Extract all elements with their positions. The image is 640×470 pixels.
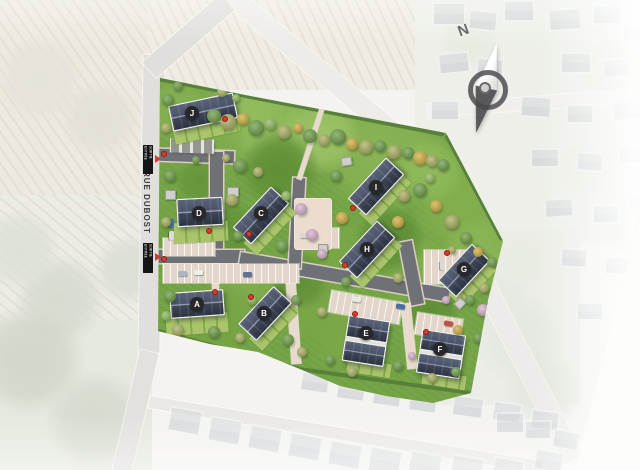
tree — [341, 277, 351, 287]
bg-house — [547, 7, 583, 32]
tree — [237, 113, 249, 125]
parked-car — [169, 231, 174, 240]
bg-house — [559, 247, 588, 269]
bg-house — [622, 24, 640, 42]
tree — [473, 247, 483, 257]
street-name-label: RUE DUBOST — [142, 171, 151, 234]
tree — [453, 325, 463, 335]
parked-car — [178, 271, 187, 276]
entrance-pin — [161, 151, 167, 157]
tree — [359, 140, 373, 154]
building-b-badge[interactable]: B — [257, 306, 271, 320]
tree — [264, 118, 276, 130]
bg-house — [618, 146, 640, 164]
parked-car — [194, 270, 203, 275]
tree — [479, 283, 489, 293]
tree — [451, 367, 461, 377]
tree — [276, 240, 288, 252]
entrance-pin — [206, 228, 212, 234]
bg-house — [532, 448, 565, 470]
parked-car — [243, 272, 252, 277]
tree — [325, 355, 335, 365]
garden-shed — [165, 190, 176, 200]
tree — [232, 94, 240, 102]
tree — [208, 326, 220, 338]
tree — [173, 81, 183, 91]
bg-house — [615, 309, 640, 329]
tree — [291, 295, 301, 305]
bg-house — [592, 204, 620, 224]
tree — [297, 347, 307, 357]
bg-house — [604, 256, 630, 275]
entrance-pin — [248, 294, 254, 300]
tree — [162, 94, 174, 106]
bg-house — [166, 405, 204, 437]
bg-house — [543, 197, 574, 219]
compass-center-dot — [479, 82, 491, 94]
tree — [248, 120, 264, 136]
tree — [408, 352, 416, 360]
building-c-badge[interactable]: C — [254, 206, 268, 220]
vegetation-blob — [495, 237, 545, 287]
tree — [233, 159, 247, 173]
tree — [442, 296, 450, 304]
bg-house — [206, 415, 244, 447]
tree — [277, 125, 291, 139]
bg-house — [524, 420, 552, 440]
tree — [465, 295, 475, 305]
tree — [317, 249, 327, 259]
tree — [295, 203, 307, 215]
entrance-pin — [444, 250, 450, 256]
tree — [347, 367, 357, 377]
tree — [281, 191, 291, 201]
entrance-pin — [350, 205, 356, 211]
entrance-pin — [423, 329, 429, 335]
building-e-roof — [342, 315, 391, 367]
bg-house — [611, 99, 640, 122]
bg-house — [566, 104, 594, 124]
tree — [161, 311, 171, 321]
tree — [374, 140, 386, 152]
tree — [306, 229, 318, 241]
tree — [413, 151, 427, 165]
tree — [164, 170, 176, 182]
building-h-badge[interactable]: H — [360, 242, 374, 256]
tree — [207, 109, 221, 123]
tree — [164, 290, 176, 302]
tree — [172, 324, 184, 336]
building-j-badge[interactable]: J — [185, 106, 199, 120]
tree — [161, 217, 171, 227]
building-e-badge[interactable]: E — [359, 326, 373, 340]
tree — [430, 200, 442, 212]
building-d-badge[interactable]: D — [192, 206, 206, 220]
garden-shed — [340, 156, 352, 167]
tree — [393, 361, 403, 371]
tree — [330, 170, 342, 182]
compass-north-arrow: N — [448, 18, 528, 144]
bg-house — [326, 439, 364, 470]
tree — [330, 129, 346, 145]
bg-house — [530, 148, 560, 168]
tree — [303, 129, 317, 143]
tree — [427, 373, 437, 383]
building-i-badge[interactable]: I — [369, 180, 383, 194]
entrance-pin — [352, 311, 358, 317]
tree — [235, 333, 245, 343]
tree — [222, 154, 230, 162]
tree — [282, 334, 294, 346]
bg-house — [601, 57, 631, 79]
tree — [460, 232, 472, 244]
building-f-badge[interactable]: F — [433, 342, 447, 356]
bg-house — [575, 151, 605, 173]
tree — [346, 138, 358, 150]
bg-house — [576, 302, 604, 321]
bg-house — [286, 431, 324, 463]
tree — [233, 231, 243, 241]
entrance-pin — [246, 231, 252, 237]
tree — [318, 134, 330, 146]
bg-house — [560, 52, 592, 74]
tree — [445, 215, 459, 229]
site-plan-canvas: ABCDEFGHIJ RUE DUBOST ENTRÉESORTIEENTRÉE… — [0, 0, 640, 470]
building-a-badge[interactable]: A — [190, 297, 204, 311]
bg-house — [550, 428, 581, 453]
tree — [317, 307, 327, 317]
tree — [425, 173, 435, 183]
tree — [293, 123, 303, 133]
tree — [192, 156, 200, 164]
tree — [336, 212, 348, 224]
entrance-pin — [212, 289, 218, 295]
tree — [487, 257, 497, 267]
tree — [393, 273, 403, 283]
tree — [413, 183, 427, 197]
tree — [161, 123, 171, 133]
tree — [387, 145, 401, 159]
entrance-pin — [342, 262, 348, 268]
tree — [398, 190, 410, 202]
tree — [226, 194, 238, 206]
entrance-pin — [161, 256, 167, 262]
tree — [392, 216, 404, 228]
bg-house — [592, 4, 622, 25]
bg-house — [628, 194, 640, 211]
entrance-pin — [222, 116, 228, 122]
tree — [253, 167, 263, 177]
bg-house — [451, 394, 486, 420]
compass-n-label: N — [455, 21, 471, 41]
building-g-badge[interactable]: G — [457, 262, 471, 276]
parked-car — [440, 261, 445, 270]
tree — [437, 159, 449, 171]
bg-house — [495, 412, 525, 434]
bg-house — [246, 423, 284, 455]
